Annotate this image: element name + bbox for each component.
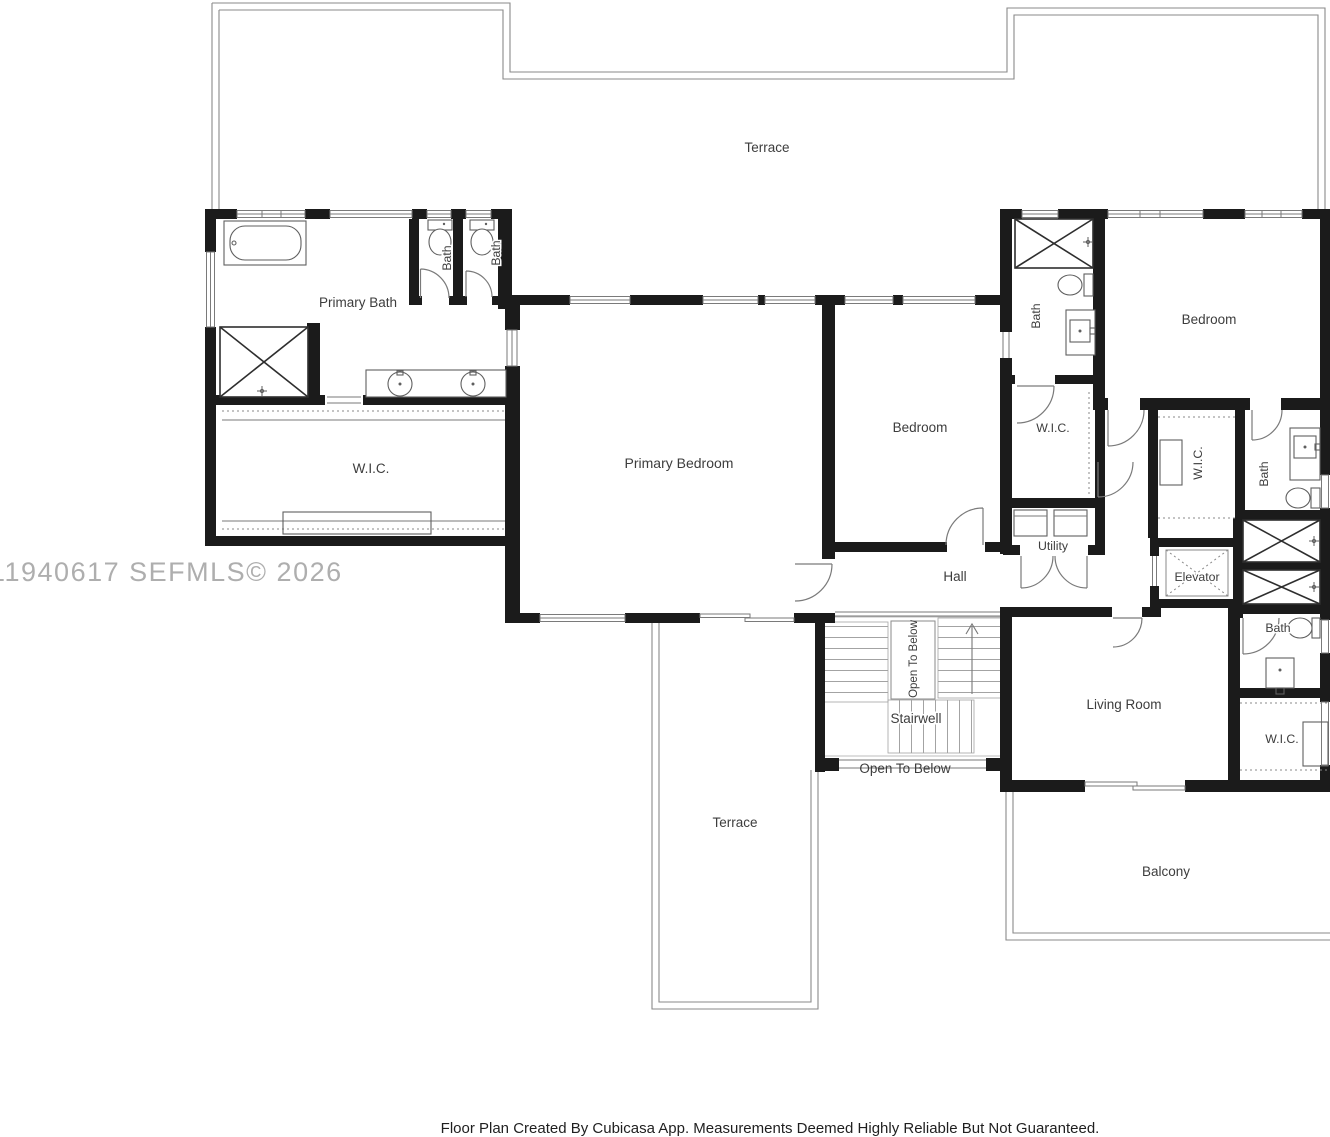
window [703, 295, 758, 305]
label-utility: Utility [1038, 539, 1069, 553]
label-bath-small-right: Bath [489, 240, 503, 265]
label-bedroom-center: Bedroom [893, 420, 948, 435]
window [427, 209, 451, 219]
stairwell-railing [835, 612, 1000, 616]
label-wic-left: W.I.C. [353, 461, 390, 476]
label-bedroom-right: Bedroom [1182, 312, 1237, 327]
door-utility-left [1021, 556, 1053, 588]
terrace-top-outline [212, 3, 1325, 209]
sink-vanity [1066, 310, 1095, 355]
floor-plan-canvas: Terrace Primary Bath Bath Bath W.I.C. Pr… [0, 0, 1330, 1137]
door-bath-small-left [421, 269, 450, 298]
footer-disclaimer: Floor Plan Created By Cubicasa App. Meas… [441, 1120, 1100, 1137]
window [505, 330, 520, 366]
label-terrace-top: Terrace [744, 140, 789, 155]
window [237, 209, 305, 219]
label-wic-right: W.I.C. [1191, 446, 1205, 479]
cased-opening [327, 397, 361, 403]
label-wic-center: W.I.C. [1036, 421, 1069, 435]
label-open-to-below-vertical: Open To Below [908, 619, 920, 697]
shower-right-lower [1243, 570, 1320, 604]
shower-top-right [1015, 219, 1093, 268]
sliding-door [1085, 780, 1185, 792]
label-terrace-bottom: Terrace [712, 815, 757, 830]
window [1108, 209, 1203, 219]
label-living-room: Living Room [1086, 697, 1161, 712]
pocket-door [1000, 332, 1012, 358]
door-bedroom-center [946, 508, 983, 545]
window [1320, 475, 1330, 508]
toilet [1288, 618, 1320, 638]
label-primary-bedroom: Primary Bedroom [625, 455, 734, 471]
label-bath-bottom-right: Bath [1265, 621, 1290, 635]
sliding-door [700, 613, 794, 623]
door-corridor-top [1108, 410, 1144, 446]
door-bath-small-right [466, 271, 492, 297]
label-bath-top-right: Bath [1029, 303, 1043, 328]
double-vanity [366, 370, 506, 397]
label-hall: Hall [943, 569, 966, 584]
door-primary-bedroom [795, 564, 832, 601]
window [1022, 209, 1058, 219]
window [330, 209, 412, 219]
window [1245, 209, 1302, 219]
washer-dryer [1014, 510, 1087, 536]
mls-watermark: 11940617 SEFMLS© 2026 [0, 557, 343, 587]
shower-right-upper [1243, 520, 1320, 562]
window [570, 295, 630, 305]
label-primary-bath: Primary Bath [319, 295, 397, 310]
window [903, 295, 975, 305]
label-open-to-below-bottom: Open To Below [859, 761, 951, 776]
door-utility-right [1055, 556, 1087, 588]
label-balcony: Balcony [1142, 864, 1190, 879]
window [540, 613, 625, 623]
label-bath-small-left: Bath [440, 245, 454, 270]
toilet [1058, 274, 1093, 296]
window [205, 252, 216, 327]
window [1320, 620, 1330, 653]
window [765, 295, 815, 305]
label-stairwell: Stairwell [890, 711, 941, 726]
sink-vanity [1290, 428, 1320, 480]
door-wic-center [1017, 386, 1054, 423]
label-bath-right: Bath [1257, 461, 1271, 486]
bathtub [224, 221, 306, 265]
elevator-door [1150, 556, 1159, 586]
label-elevator: Elevator [1174, 570, 1219, 584]
door-living-room [1113, 618, 1142, 647]
door-bath-right [1252, 410, 1282, 440]
window [466, 209, 491, 219]
label-wic-bottom-right: W.I.C. [1265, 732, 1298, 746]
window [845, 295, 893, 305]
shower-primary [220, 327, 308, 397]
toilet [1286, 488, 1320, 508]
